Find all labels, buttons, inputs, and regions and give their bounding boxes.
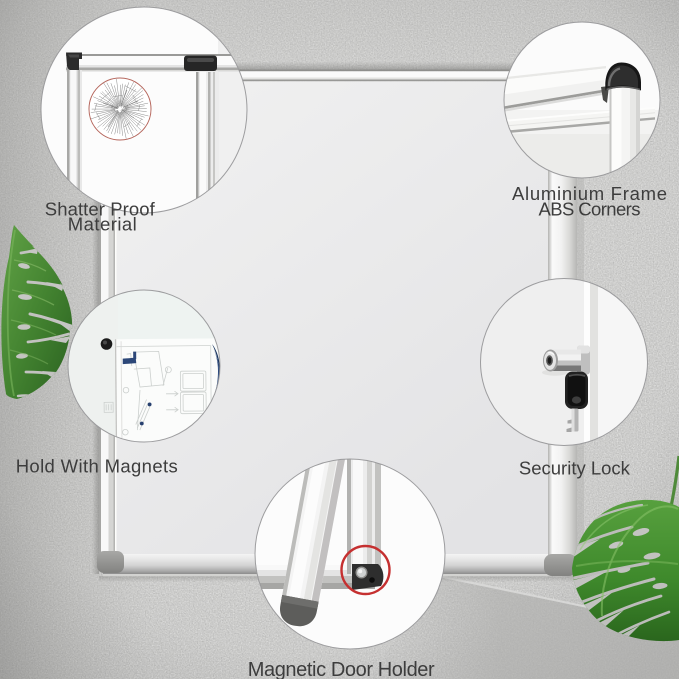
svg-text:Security Lock: Security Lock bbox=[519, 458, 631, 479]
svg-text:Magnetic Door Holder: Magnetic Door Holder bbox=[248, 659, 435, 679]
svg-text:Hold With Magnets: Hold With Magnets bbox=[16, 456, 178, 477]
svg-text:ABS Corners: ABS Corners bbox=[539, 199, 641, 220]
svg-text:Material: Material bbox=[68, 213, 137, 234]
